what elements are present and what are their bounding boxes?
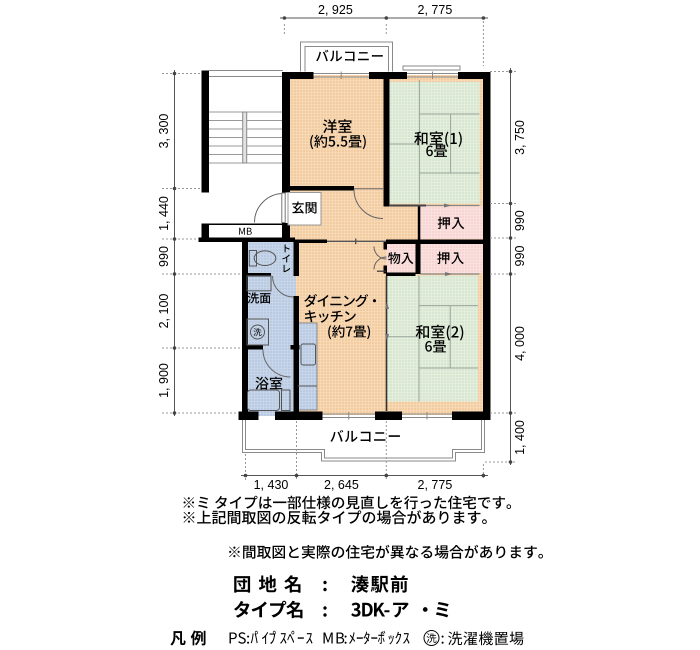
svg-text:1, 430: 1, 430	[254, 478, 289, 492]
svg-text:1, 400: 1, 400	[513, 420, 527, 455]
svg-text:2, 775: 2, 775	[418, 3, 453, 17]
svg-text:2, 100: 2, 100	[157, 294, 171, 329]
svg-text:4, 000: 4, 000	[513, 326, 527, 361]
svg-text:1, 900: 1, 900	[157, 363, 171, 398]
svg-text:2, 925: 2, 925	[318, 3, 353, 17]
svg-text:2, 645: 2, 645	[324, 478, 359, 492]
svg-text:990: 990	[513, 210, 527, 231]
svg-text:990: 990	[513, 246, 527, 267]
svg-text:2, 775: 2, 775	[418, 478, 453, 492]
svg-text:990: 990	[157, 246, 171, 267]
svg-text:1, 440: 1, 440	[157, 196, 171, 231]
svg-text:3, 300: 3, 300	[157, 114, 171, 149]
svg-text:3, 750: 3, 750	[513, 120, 527, 155]
